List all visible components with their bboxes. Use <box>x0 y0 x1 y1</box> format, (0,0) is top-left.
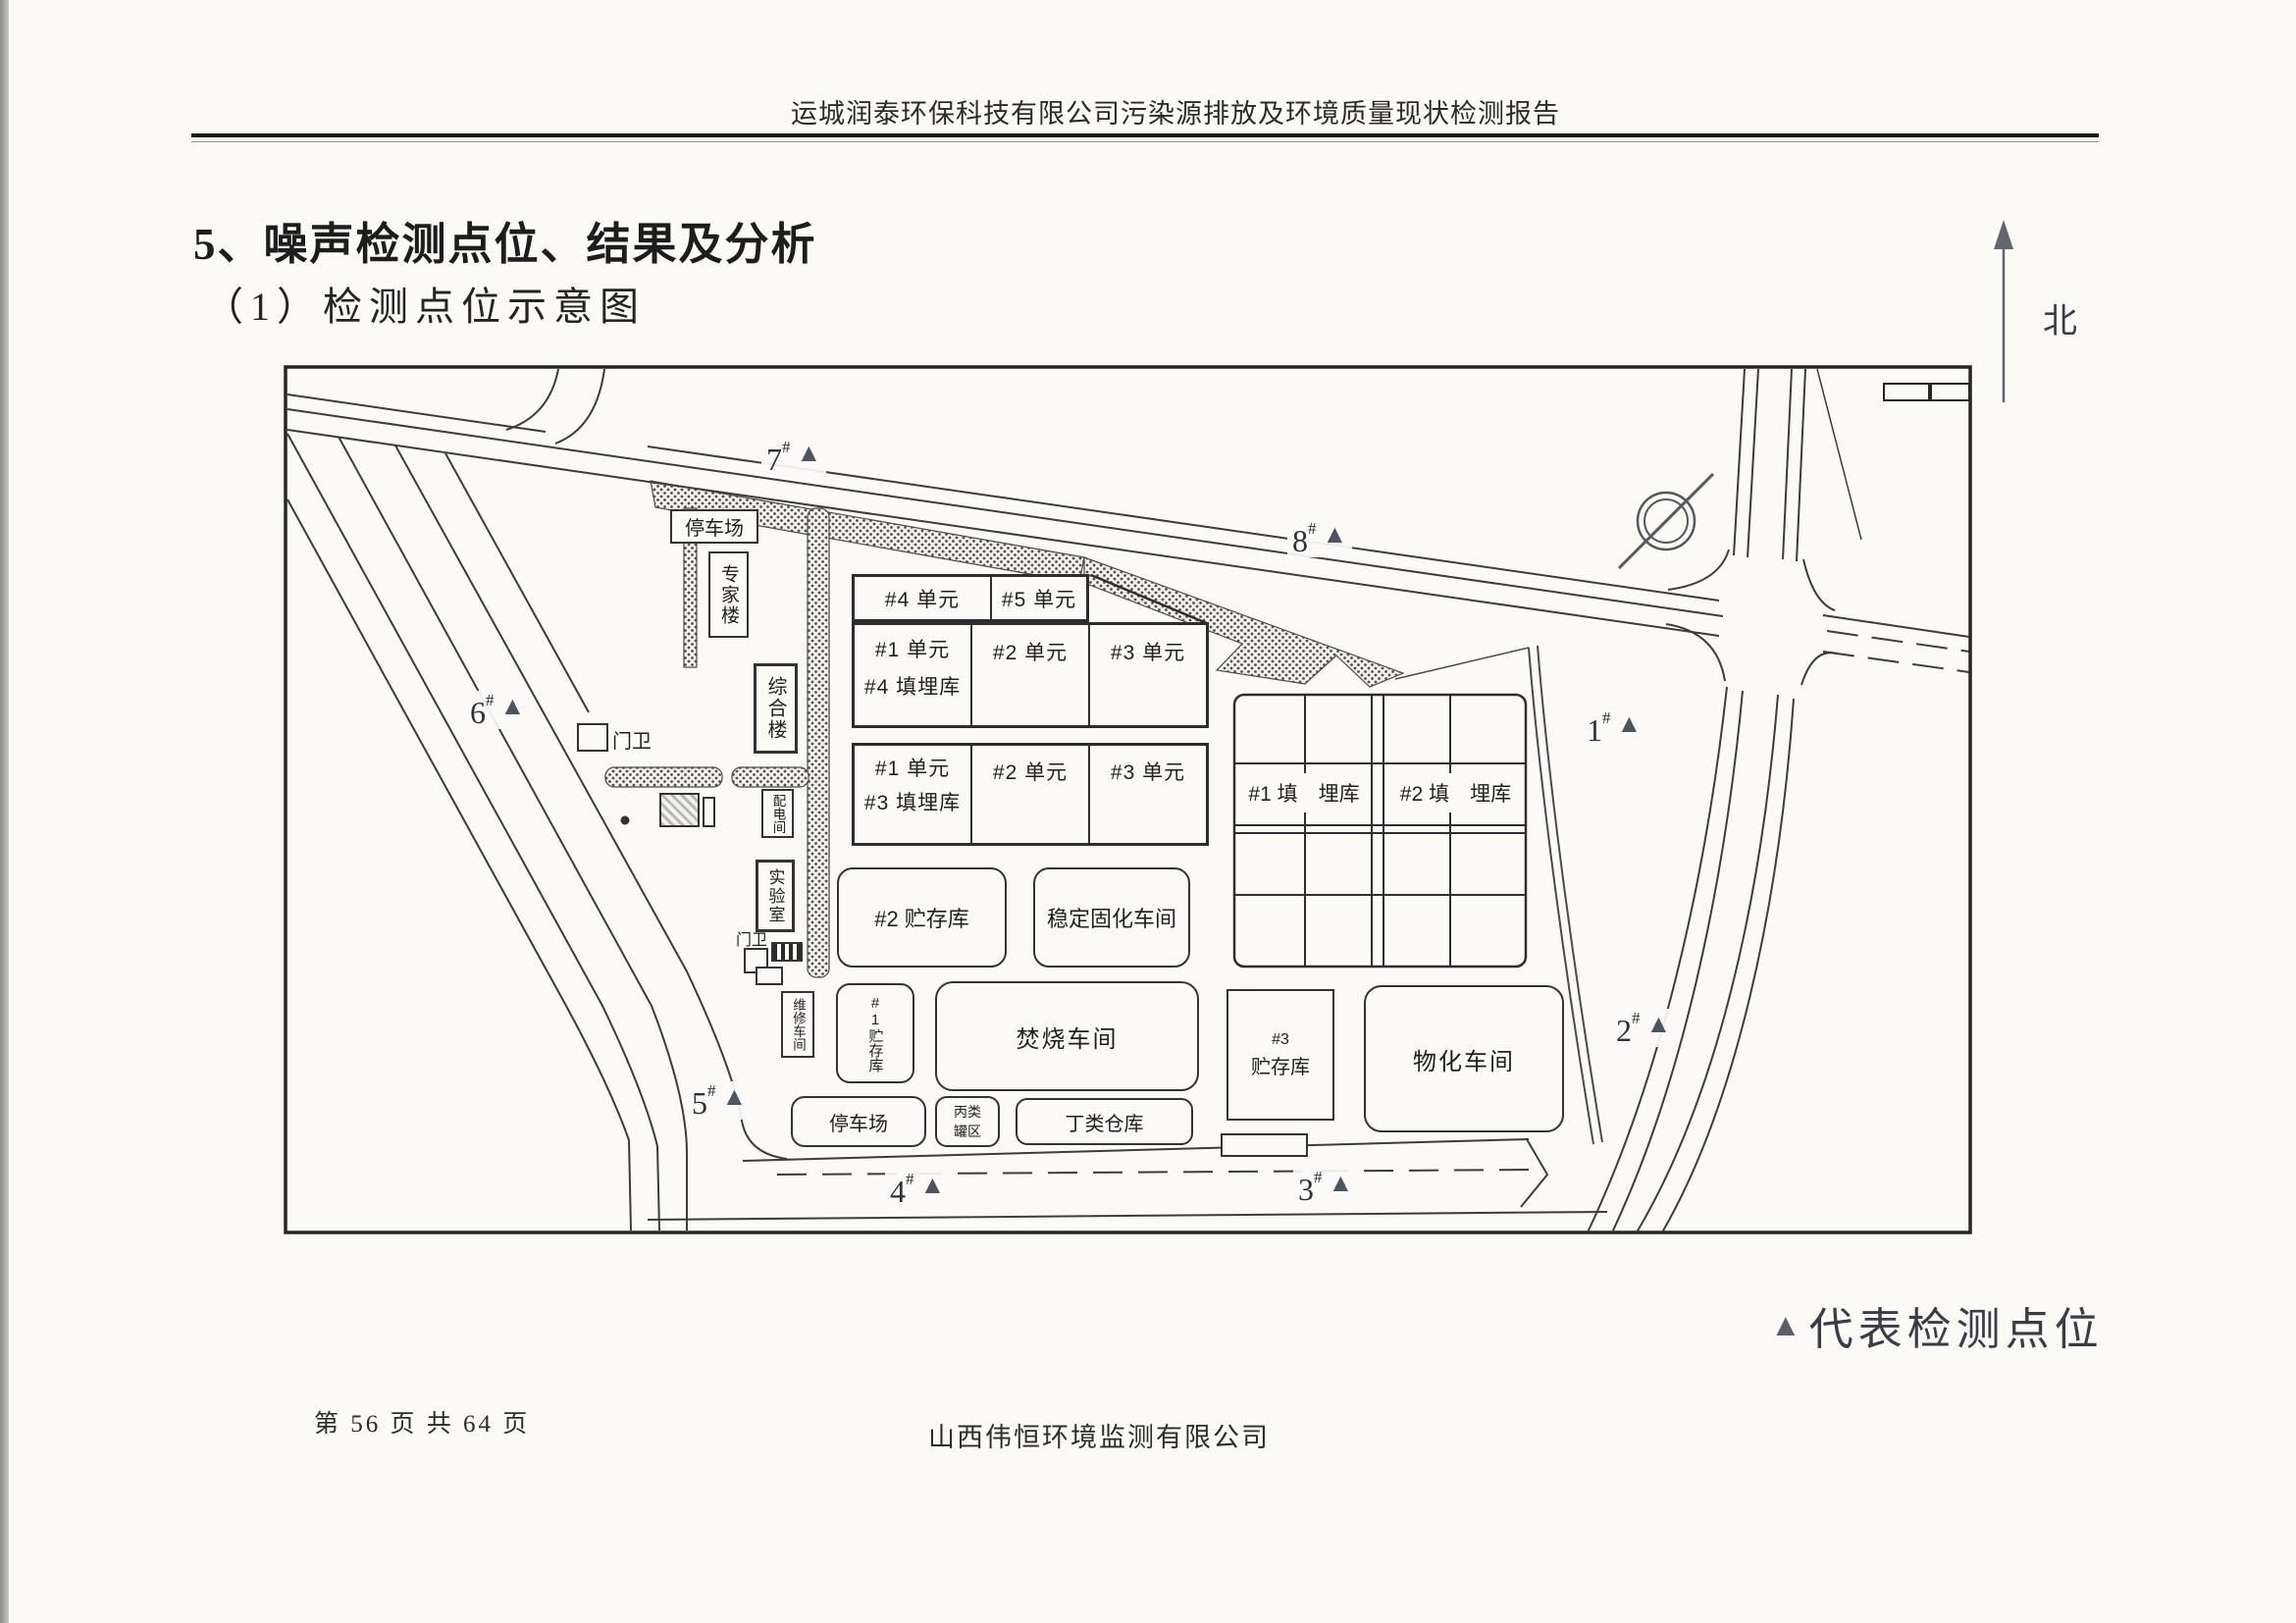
tank-area-line1: 丙类 <box>954 1102 981 1122</box>
cell-r3c3: #3 单元 <box>1111 757 1185 786</box>
cell-unit4: #4 单元 <box>885 584 960 613</box>
landfill1-label: #1 填 埋库 <box>1238 773 1370 812</box>
building-solidification: 稳定固化车间 <box>1033 867 1190 968</box>
road-branch-north <box>506 369 604 444</box>
road-north-south <box>1588 369 1861 1232</box>
building-storage2: #2 贮存库 <box>837 867 1007 968</box>
tank-area-line2: 罐区 <box>954 1122 981 1141</box>
gate2-label: 门卫 <box>736 926 767 950</box>
unit-block-row3: #1 单元 #3 填埋库 #2 单元 #3 单元 <box>852 743 1209 846</box>
monitor-point-1: 1# ▲ <box>1582 708 1646 747</box>
shed-b <box>703 797 715 827</box>
building-maintenance: 维修车间 <box>781 991 814 1058</box>
monitor-point-5: 5# ▲ <box>687 1081 752 1120</box>
monitor-point-8: 8# ▲ <box>1287 519 1352 557</box>
cell-r3c1-landfill: #3 填埋库 <box>864 787 961 816</box>
compass-circle-icon <box>1619 474 1713 568</box>
triangle-marker-icon: ▲ <box>920 1171 946 1200</box>
cell-unit5: #5 单元 <box>1002 584 1076 613</box>
building-storage3: #3 贮存库 <box>1226 989 1334 1121</box>
legend-monitor-points: ▲ 代表检测点位 <box>1770 1293 2104 1357</box>
building-complex: 综合楼 <box>754 663 798 754</box>
building-laboratory: 实验室 <box>756 860 795 932</box>
triangle-marker-icon: ▲ <box>797 439 822 468</box>
road-south <box>648 1139 1607 1220</box>
unit-block-row2: #1 单元 #4 填埋库 #2 单元 #3 单元 <box>852 622 1209 728</box>
building-parking-top: 停车场 <box>670 509 758 544</box>
legend-text: 代表检测点位 <box>1809 1293 2104 1357</box>
triangle-marker-icon: ▲ <box>1323 520 1348 550</box>
striped-structure <box>771 942 803 962</box>
building-expert: 专家楼 <box>708 551 749 638</box>
gate1-label: 门卫 <box>612 725 652 754</box>
building-parking-bottom: 停车场 <box>791 1096 926 1147</box>
legend-triangle-icon: ▲ <box>1770 1307 1801 1343</box>
utility-dot <box>621 816 630 825</box>
landfill2-label: #2 填 埋库 <box>1387 773 1524 812</box>
monitor-point-4: 4# ▲ <box>885 1170 950 1208</box>
building-warehouse-d: 丁类仓库 <box>1016 1098 1193 1145</box>
east-landfill-grid <box>1234 695 1526 967</box>
shed-a <box>659 793 700 827</box>
unit-block-row1: #4 单元 #5 单元 <box>852 574 1089 622</box>
triangle-marker-icon: ▲ <box>722 1082 748 1112</box>
storage3-name: 贮存库 <box>1251 1051 1310 1079</box>
triangle-marker-icon: ▲ <box>500 692 526 721</box>
triangle-marker-icon: ▲ <box>1646 1010 1672 1039</box>
scanned-report-page: 运城润泰环保科技有限公司污染源排放及环境质量现状检测报告 5、噪声检测点位、结果… <box>0 0 2296 1623</box>
building-storage1: #1贮存库 <box>836 983 914 1083</box>
building-power-room: 配电间 <box>761 789 794 838</box>
cell-r3c2: #2 单元 <box>993 757 1068 786</box>
weighbridge <box>1222 1134 1307 1156</box>
cell-r2c2: #2 单元 <box>993 637 1068 666</box>
cell-r3c1-unit: #1 单元 <box>875 753 950 782</box>
triangle-marker-icon: ▲ <box>1329 1169 1354 1198</box>
monitor-point-2: 2# ▲ <box>1611 1009 1676 1047</box>
lab-annex-box <box>756 967 783 985</box>
cell-r2c3: #3 单元 <box>1111 637 1185 666</box>
monitor-point-7: 7# ▲ <box>761 438 826 476</box>
gate1-box <box>577 723 608 752</box>
monitor-point-3: 3# ▲ <box>1293 1168 1358 1206</box>
building-incineration: 焚烧车间 <box>935 981 1199 1091</box>
triangle-marker-icon: ▲ <box>1617 709 1643 739</box>
storage3-number: #3 <box>1272 1031 1289 1049</box>
building-physchem: 物化车间 <box>1364 985 1564 1132</box>
cell-r2c1-landfill: #4 填埋库 <box>864 671 961 701</box>
north-arrow-icon <box>1994 220 2013 402</box>
cell-r2c1-unit: #1 单元 <box>875 634 950 663</box>
building-tank-area: 丙类 罐区 <box>935 1096 1000 1147</box>
monitor-point-6: 6# ▲ <box>465 691 530 729</box>
